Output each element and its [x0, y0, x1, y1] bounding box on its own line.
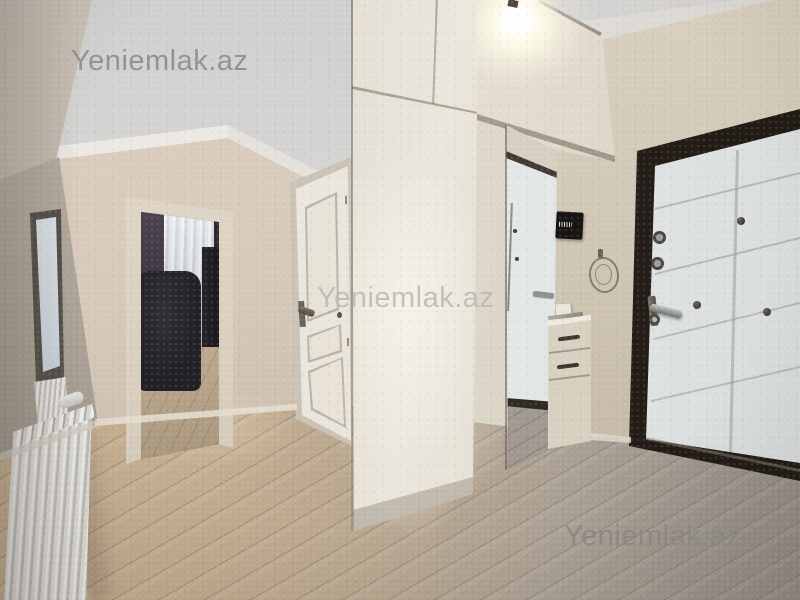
watermark-top-left: Yeniemlak.az	[71, 45, 248, 78]
watermark-center: Yeniemlak.az	[317, 282, 494, 315]
listing-photo: Yeniemlak.az Yeniemlak.az Yeniemlak.az	[0, 0, 800, 600]
watermark-bottom-right: Yeniemlak.az	[564, 520, 741, 553]
